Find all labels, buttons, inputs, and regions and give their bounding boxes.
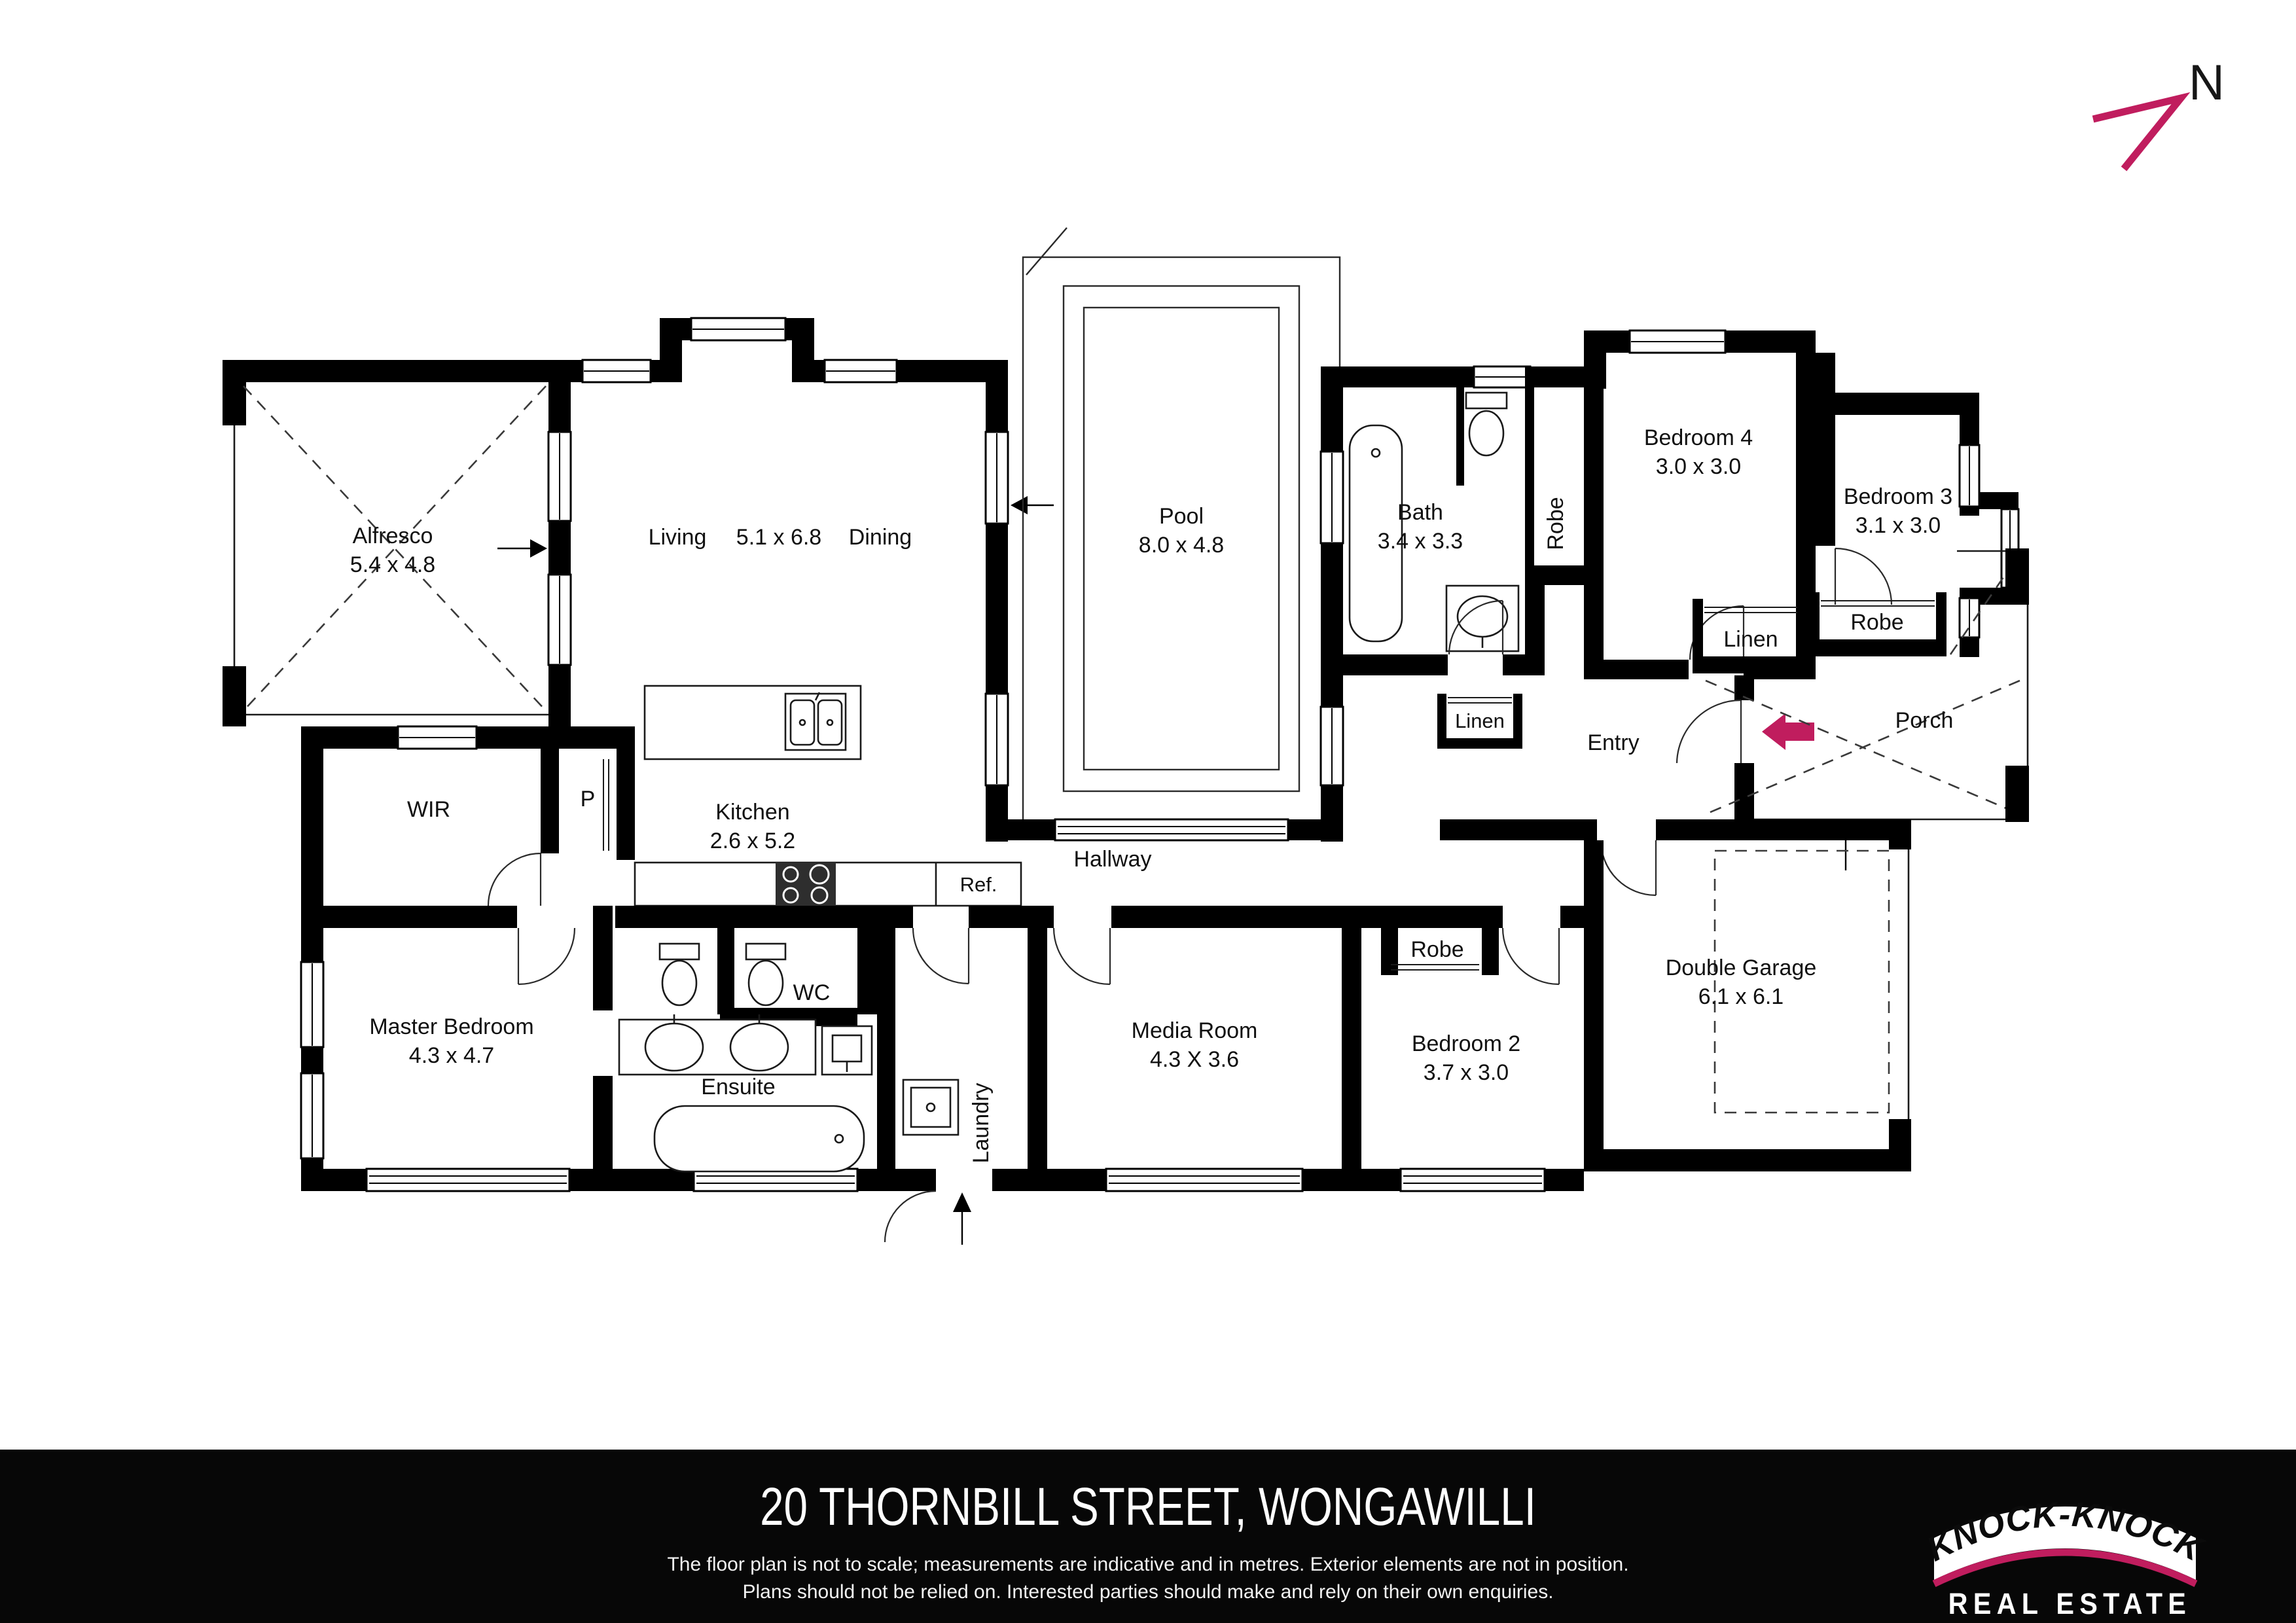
disclaimer-line2: Plans should not be relied on. Intereste… [742,1581,1553,1603]
closet-label-robe-bed2: Robe [1410,937,1463,962]
living-north-wall [571,318,1008,382]
room-label-hallway: Hallway [1073,847,1151,872]
room-laundry: Laundry [877,928,1047,1169]
wall-living-pool [986,382,1054,842]
room-label-wc: WC [793,980,831,1005]
room-ensuite: WC Ensuite 2.1 x 2.8 [619,928,877,1171]
floor-plan: N Alfresco 5.4 x 4.8 [0,0,2296,1623]
room-label-bedroom3: Bedroom 3 [1844,484,1952,509]
room-living-dining: Living 5.1 x 6.8 Dining [649,525,912,550]
master-wing-walls [301,726,1584,1245]
room-label-dining: Dining [849,525,912,550]
room-bedroom3: Bedroom 3 3.1 x 3.0 [1816,353,2018,657]
room-pool: Pool 8.0 x 4.8 [1008,228,1343,842]
closet-label-linen-entry: Linen [1723,627,1778,652]
room-label-robe-bed4: Robe [1543,497,1568,550]
room-dims-bedroom4: 3.0 x 3.0 [1656,454,1741,479]
room-label-media: Media Room [1132,1018,1258,1043]
room-label-bedroom4: Bedroom 4 [1644,425,1753,450]
laundry-entry-arrow-icon [953,1192,971,1212]
room-dims-living: 5.1 x 6.8 [736,525,821,550]
room-label-garage: Double Garage [1666,955,1817,980]
closet-robe-bed2: Robe [1381,928,1499,975]
room-master: Master Bedroom 4.3 x 4.7 [369,906,613,1191]
footer-bar: 20 THORNBILL STREET, WONGAWILLI The floo… [0,1427,2296,1623]
room-label-wir: WIR [407,797,450,822]
room-label-porch: Porch [1895,708,1954,733]
closet-linen-entry: Linen [1693,599,1809,673]
room-label-kitchen: Kitchen [715,800,789,825]
room-media: Media Room 4.3 X 3.6 [1132,928,1361,1169]
room-dims-master: 4.3 x 4.7 [409,1043,494,1068]
kitchen-sink-icon [785,692,846,750]
room-alfresco: Alfresco 5.4 x 4.8 [223,360,571,726]
room-label-pool: Pool [1159,504,1204,529]
north-label: N [2189,55,2225,111]
room-label-living: Living [649,525,707,550]
room-bedroom2: Robe Bedroom 2 3.7 x 3.0 [1381,928,1520,1085]
room-label-entry: Entry [1587,730,1639,755]
wall-alfresco-living [548,360,571,726]
room-wir: WIR P [301,726,635,906]
closet-linen-hall: Linen [1437,694,1522,749]
room-dims-bedroom2: 3.7 x 3.0 [1424,1060,1509,1085]
closet-label-linen-hall: Linen [1455,709,1505,732]
room-dims-garage: 6.1 x 6.1 [1698,984,1784,1009]
room-label-bedroom2: Bedroom 2 [1412,1031,1520,1056]
room-label-master: Master Bedroom [369,1014,533,1039]
closet-label-robe-bed3: Robe [1850,610,1903,635]
room-entry: Entry [1587,675,1814,819]
room-dims-media: 4.3 X 3.6 [1150,1047,1239,1072]
floor-plan-page: N Alfresco 5.4 x 4.8 [0,0,2296,1623]
room-label-laundry: Laundry [969,1083,994,1164]
room-label-ensuite: Ensuite [701,1075,775,1099]
closet-robe-bed3: Robe [1809,592,1946,656]
toilet-icon [1466,393,1507,455]
room-dims-alfresco: 5.4 x 4.8 [350,552,435,577]
room-dims-kitchen: 2.6 x 5.2 [710,829,795,853]
label-fridge: Ref. [960,873,997,896]
room-dims-pool: 8.0 x 4.8 [1139,533,1224,558]
room-label-alfresco: Alfresco [353,524,433,548]
room-bath: Robe Bath 3.4 x 3.3 [1343,366,1584,675]
ensuite-bathtub-icon [655,1106,864,1171]
disclaimer-line1: The floor plan is not to scale; measurem… [667,1554,1628,1575]
room-kitchen: Kitchen 2.6 x 5.2 Ref. [635,686,1021,906]
entry-direction-arrow-icon [1762,713,1814,750]
living-door-arrow-icon [1011,496,1028,514]
wc-toilet-icon [746,944,785,1005]
logo-tagline-text: REAL ESTATE [1948,1588,2192,1620]
address-title: 20 THORNBILL STREET, WONGAWILLI [760,1476,1536,1537]
room-dims-bedroom3: 3.1 x 3.0 [1856,513,1941,538]
room-label-pantry: P [581,787,596,811]
alfresco-door-arrow-icon [530,539,547,558]
room-garage: Double Garage 6.1 x 6.1 [1440,819,1911,1171]
room-dims-bath: 3.4 x 3.3 [1378,529,1463,554]
room-label-bath: Bath [1397,500,1443,525]
ensuite-toilet-icon [660,944,699,1005]
north-arrow-icon: N [2093,55,2225,169]
